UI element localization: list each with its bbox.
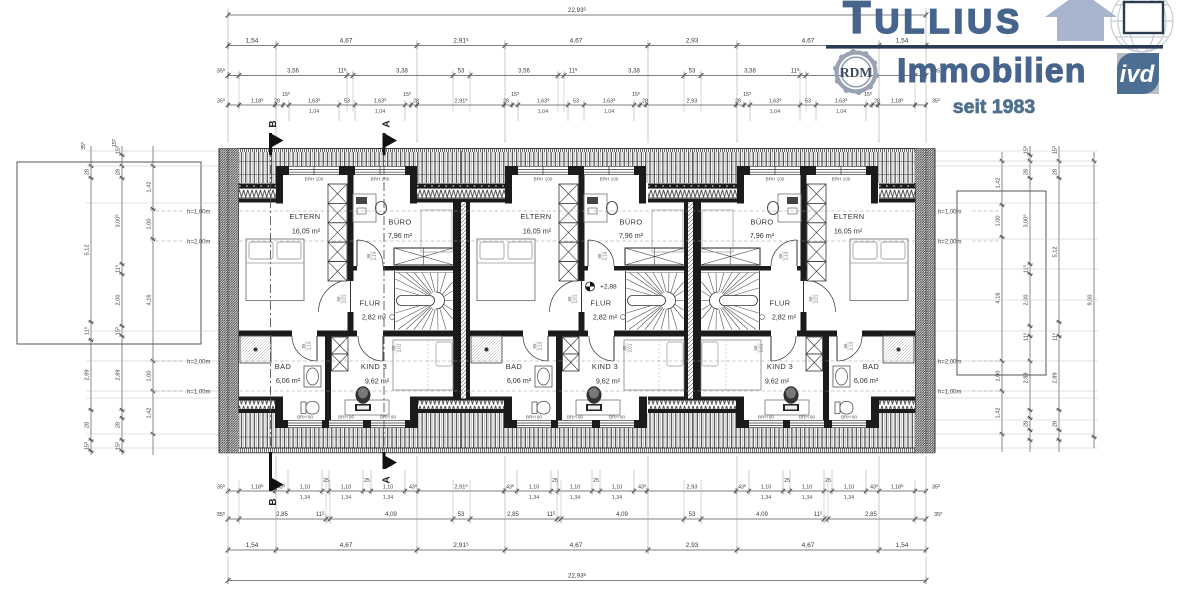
svg-text:2,82 m²: 2,82 m² (593, 313, 618, 322)
svg-text:2,82 m²: 2,82 m² (362, 313, 387, 322)
svg-text:2,89: 2,89 (1024, 373, 1030, 384)
svg-text:88: 88 (778, 253, 783, 258)
svg-text:2,89: 2,89 (85, 370, 91, 381)
svg-text:2,01: 2,01 (814, 294, 819, 303)
svg-text:6,06 m²: 6,06 m² (276, 376, 301, 385)
svg-text:2,85: 2,85 (507, 512, 519, 518)
svg-text:28: 28 (1053, 421, 1059, 427)
svg-text:1,04: 1,04 (836, 109, 847, 115)
svg-text:1,34: 1,34 (761, 495, 772, 501)
svg-text:3,38: 3,38 (628, 69, 640, 75)
svg-text:1,54: 1,54 (246, 38, 259, 45)
svg-text:88: 88 (597, 253, 602, 258)
svg-text:1,10: 1,10 (761, 485, 772, 491)
svg-text:53: 53 (573, 99, 579, 105)
svg-text:4,67: 4,67 (340, 542, 353, 549)
svg-text:53: 53 (805, 99, 811, 105)
svg-text:TULLIUS: TULLIUS (843, 0, 1023, 43)
svg-text:88: 88 (336, 296, 341, 301)
svg-text:2,01: 2,01 (397, 343, 402, 352)
svg-text:BRH 100: BRH 100 (832, 177, 851, 182)
svg-text:53: 53 (689, 512, 696, 518)
svg-text:2,01: 2,01 (759, 343, 764, 352)
svg-text:1,34: 1,34 (529, 495, 540, 501)
svg-text:7,96 m²: 7,96 m² (619, 231, 644, 240)
svg-text:1,04: 1,04 (375, 109, 386, 115)
svg-text:6,06 m²: 6,06 m² (854, 376, 879, 385)
svg-text:1,34: 1,34 (341, 495, 352, 501)
svg-text:h=1,00m: h=1,00m (187, 210, 211, 216)
svg-text:88: 88 (622, 345, 627, 350)
svg-text:BÜRO: BÜRO (389, 218, 412, 227)
svg-text:1,34: 1,34 (612, 495, 623, 501)
svg-text:BAD: BAD (275, 362, 291, 371)
svg-text:88: 88 (391, 345, 396, 350)
svg-text:28: 28 (1024, 421, 1030, 427)
svg-text:2,19: 2,19 (784, 251, 789, 260)
svg-text:h=2,00m: h=2,00m (187, 360, 211, 366)
svg-text:9,62 m²: 9,62 m² (596, 377, 621, 386)
svg-text:5,12: 5,12 (85, 245, 91, 256)
svg-text:88: 88 (366, 253, 371, 258)
svg-text:2,13: 2,13 (538, 341, 543, 350)
svg-text:4,16: 4,16 (147, 295, 153, 306)
svg-text:1,34: 1,34 (802, 495, 813, 501)
svg-text:1,42: 1,42 (147, 408, 153, 419)
svg-text:4,09: 4,09 (385, 512, 397, 518)
svg-text:1,04: 1,04 (604, 109, 615, 115)
svg-text:KIND 3: KIND 3 (361, 362, 387, 371)
svg-text:28: 28 (1024, 169, 1030, 175)
svg-text:1,54: 1,54 (246, 542, 259, 549)
svg-text:KIND 3: KIND 3 (592, 362, 618, 371)
svg-text:53: 53 (458, 69, 465, 75)
svg-text:A: A (382, 120, 393, 127)
svg-text:BRH 90: BRH 90 (526, 415, 543, 420)
svg-text:4,67: 4,67 (340, 38, 353, 45)
svg-text:1,34: 1,34 (300, 495, 311, 501)
svg-text:ELTERN: ELTERN (833, 212, 864, 221)
svg-text:7,96 m²: 7,96 m² (750, 231, 775, 240)
svg-text:ELTERN: ELTERN (520, 212, 551, 221)
svg-text:4,67: 4,67 (570, 38, 583, 45)
svg-text:28: 28 (413, 99, 419, 105)
svg-text:1,00: 1,00 (147, 371, 153, 382)
svg-text:28: 28 (874, 99, 880, 105)
svg-text:h=1,00m: h=1,00m (187, 390, 211, 396)
svg-text:h=1,00m: h=1,00m (938, 390, 962, 396)
svg-text:1,10: 1,10 (341, 485, 352, 491)
svg-text:9,62 m²: 9,62 m² (365, 377, 390, 386)
svg-text:28: 28 (1053, 169, 1059, 175)
svg-text:ELTERN: ELTERN (289, 212, 320, 221)
svg-text:4,09: 4,09 (756, 512, 768, 518)
svg-text:88: 88 (843, 343, 848, 348)
svg-text:B: B (268, 498, 279, 505)
svg-text:28: 28 (116, 169, 122, 175)
svg-text:2,85: 2,85 (865, 512, 877, 518)
svg-text:2,85: 2,85 (276, 512, 288, 518)
svg-text:53: 53 (458, 512, 465, 518)
svg-text:2,93: 2,93 (687, 99, 698, 105)
svg-text:6,06 m²: 6,06 m² (507, 376, 532, 385)
svg-text:1,00: 1,00 (996, 216, 1002, 227)
svg-text:2,00: 2,00 (116, 295, 122, 306)
svg-text:7,96 m²: 7,96 m² (388, 231, 413, 240)
svg-text:2,93: 2,93 (687, 485, 698, 491)
svg-text:28: 28 (642, 99, 648, 105)
svg-text:A: A (382, 476, 393, 483)
svg-text:9,62 m²: 9,62 m² (765, 377, 790, 386)
svg-text:1,00: 1,00 (147, 219, 153, 230)
svg-text:1,34: 1,34 (570, 495, 581, 501)
svg-text:1,10: 1,10 (844, 485, 855, 491)
svg-text:ivd: ivd (1120, 61, 1156, 88)
svg-text:1,10: 1,10 (529, 485, 540, 491)
svg-text:BÜRO: BÜRO (620, 218, 643, 227)
svg-text:4,67: 4,67 (802, 542, 815, 549)
svg-text:1,10: 1,10 (383, 485, 394, 491)
svg-text:53: 53 (689, 69, 696, 75)
svg-text:BRH 100: BRH 100 (600, 177, 619, 182)
svg-text:1,42: 1,42 (147, 182, 153, 193)
svg-text:16,05 m²: 16,05 m² (292, 227, 321, 236)
svg-text:BRH 100: BRH 100 (766, 177, 785, 182)
svg-text:16,05 m²: 16,05 m² (834, 227, 863, 236)
svg-text:28: 28 (85, 422, 91, 428)
svg-text:BRH 100: BRH 100 (371, 177, 390, 182)
svg-text:4,09: 4,09 (616, 512, 628, 518)
svg-text:1,00: 1,00 (996, 371, 1002, 382)
svg-text:BRH 90: BRH 90 (841, 415, 858, 420)
svg-text:FLUR: FLUR (360, 299, 381, 308)
svg-text:53: 53 (344, 99, 350, 105)
svg-text:1,10: 1,10 (570, 485, 581, 491)
svg-text:1,10: 1,10 (612, 485, 623, 491)
svg-text:2,13: 2,13 (849, 341, 854, 350)
svg-text:B: B (268, 120, 279, 127)
svg-text:2,01: 2,01 (573, 294, 578, 303)
svg-text:1,42: 1,42 (996, 408, 1002, 419)
svg-text:1,04: 1,04 (538, 109, 549, 115)
svg-text:25: 25 (784, 478, 790, 484)
svg-text:2,89: 2,89 (1053, 373, 1059, 384)
svg-text:h=2,00m: h=2,00m (187, 240, 211, 246)
svg-text:h=2,00m: h=2,00m (938, 360, 962, 366)
svg-text:seit 1983: seit 1983 (953, 96, 1036, 118)
svg-text:3,38: 3,38 (396, 69, 408, 75)
svg-text:2,01: 2,01 (342, 294, 347, 303)
svg-text:BRH 100: BRH 100 (305, 177, 324, 182)
svg-text:28: 28 (116, 422, 122, 428)
svg-text:88: 88 (808, 296, 813, 301)
svg-text:4,67: 4,67 (802, 38, 815, 45)
svg-text:+2,88: +2,88 (600, 284, 617, 291)
svg-text:25: 25 (364, 478, 370, 484)
svg-text:RDM: RDM (840, 65, 872, 80)
svg-text:1,54: 1,54 (896, 542, 909, 549)
svg-text:1,42: 1,42 (996, 178, 1002, 189)
svg-text:BAD: BAD (506, 362, 522, 371)
svg-text:1,10: 1,10 (802, 485, 813, 491)
svg-text:28: 28 (274, 99, 280, 105)
svg-text:1,04: 1,04 (309, 109, 320, 115)
svg-text:2,19: 2,19 (603, 251, 608, 260)
svg-text:4,67: 4,67 (570, 542, 583, 549)
svg-text:28: 28 (503, 99, 509, 105)
svg-text:BAD: BAD (863, 362, 879, 371)
svg-text:5,12: 5,12 (1053, 247, 1059, 258)
svg-text:h=1,00m: h=1,00m (938, 210, 962, 216)
svg-text:3,56: 3,56 (518, 69, 530, 75)
svg-text:1,04: 1,04 (770, 109, 781, 115)
svg-text:2,19: 2,19 (372, 251, 377, 260)
svg-text:BRH 100: BRH 100 (534, 177, 553, 182)
svg-text:KIND 3: KIND 3 (767, 362, 793, 371)
svg-text:FLUR: FLUR (770, 299, 791, 308)
svg-text:88: 88 (753, 345, 758, 350)
svg-text:2,89: 2,89 (116, 370, 122, 381)
svg-text:2,13: 2,13 (307, 341, 312, 350)
svg-text:88: 88 (567, 296, 572, 301)
svg-text:h=2,00m: h=2,00m (938, 240, 962, 246)
svg-text:28: 28 (735, 99, 741, 105)
svg-text:1,34: 1,34 (383, 495, 394, 501)
svg-text:4,16: 4,16 (996, 293, 1002, 304)
svg-text:BRH 90: BRH 90 (297, 415, 314, 420)
svg-text:3,38: 3,38 (744, 69, 756, 75)
svg-text:2,93: 2,93 (686, 38, 699, 45)
svg-text:1,34: 1,34 (844, 495, 855, 501)
svg-text:88: 88 (532, 343, 537, 348)
svg-text:2,01: 2,01 (628, 343, 633, 352)
svg-text:1,10: 1,10 (300, 485, 311, 491)
svg-text:88: 88 (301, 343, 306, 348)
svg-text:2,93: 2,93 (686, 542, 699, 549)
svg-text:2,82 m²: 2,82 m² (772, 313, 797, 322)
svg-text:BÜRO: BÜRO (751, 218, 774, 227)
svg-text:16,05 m²: 16,05 m² (523, 227, 552, 236)
svg-text:3,56: 3,56 (287, 69, 299, 75)
svg-text:Immobilien: Immobilien (897, 52, 1086, 90)
svg-text:28: 28 (85, 169, 91, 175)
svg-text:25: 25 (593, 478, 599, 484)
svg-text:FLUR: FLUR (591, 299, 612, 308)
